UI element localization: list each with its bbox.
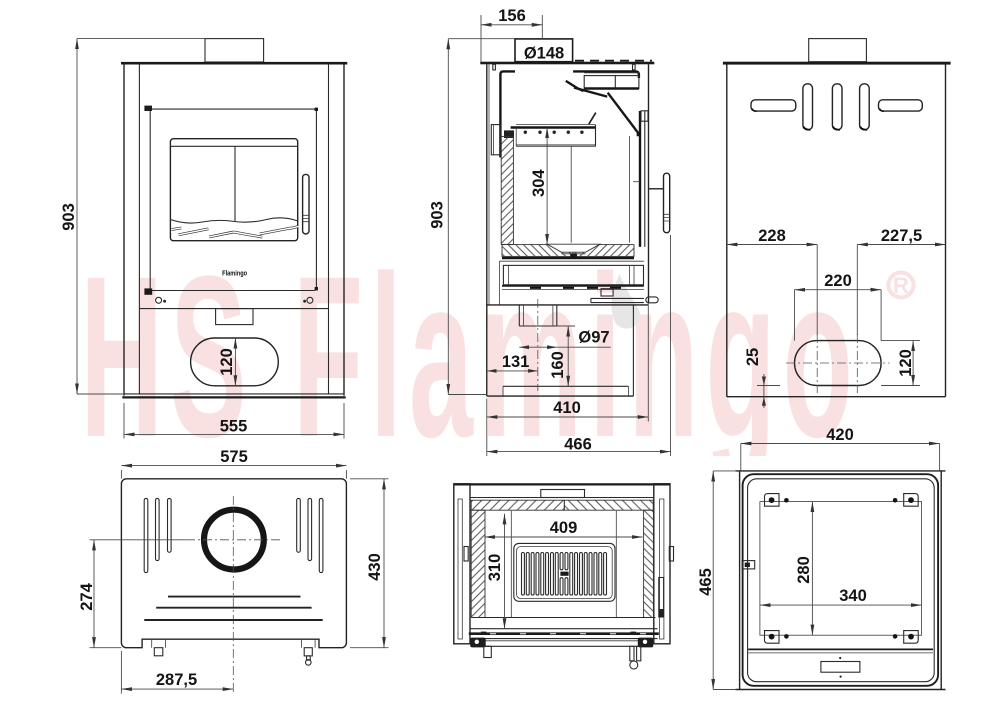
svg-text:410: 410 [553, 399, 581, 417]
svg-text:25: 25 [744, 348, 762, 366]
svg-text:280: 280 [795, 556, 813, 584]
svg-text:HS Flamingo: HS Flamingo [80, 227, 860, 485]
svg-text:Ø97: Ø97 [578, 328, 609, 346]
svg-text:340: 340 [839, 587, 867, 605]
svg-text:575: 575 [220, 448, 248, 466]
svg-text:274: 274 [78, 582, 96, 610]
svg-text:420: 420 [826, 426, 854, 444]
svg-text:131: 131 [502, 353, 530, 371]
svg-text:430: 430 [366, 553, 384, 581]
svg-text:465: 465 [697, 568, 715, 596]
svg-text:287,5: 287,5 [156, 671, 197, 689]
svg-text:Flamingo: Flamingo [222, 270, 247, 278]
svg-text:555: 555 [220, 418, 248, 436]
svg-text:R: R [893, 273, 909, 298]
svg-text:220: 220 [824, 272, 852, 290]
svg-text:903: 903 [429, 201, 447, 229]
svg-text:466: 466 [564, 435, 592, 453]
svg-text:409: 409 [550, 519, 578, 537]
svg-text:304: 304 [530, 169, 548, 197]
svg-text:120: 120 [218, 348, 236, 376]
svg-text:160: 160 [549, 351, 567, 379]
svg-text:310: 310 [486, 554, 504, 582]
svg-text:Ø148: Ø148 [524, 45, 564, 63]
svg-text:156: 156 [498, 7, 526, 25]
svg-text:903: 903 [60, 203, 78, 231]
svg-text:228: 228 [758, 227, 786, 245]
svg-text:120: 120 [897, 349, 915, 377]
svg-text:227,5: 227,5 [881, 227, 922, 245]
